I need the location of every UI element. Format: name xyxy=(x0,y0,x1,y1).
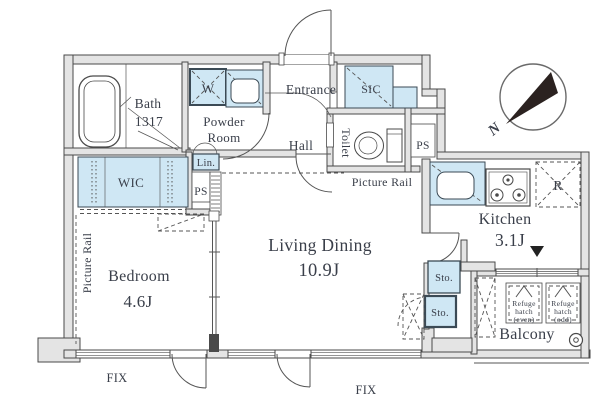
balcony-drain-icon xyxy=(570,334,583,347)
stove-icon xyxy=(486,169,530,206)
balcony-sliding-window-icon xyxy=(496,268,578,277)
fix-window-middle-icon xyxy=(228,350,275,358)
bathtub-icon xyxy=(79,64,180,150)
kitchen-label: Kitchen xyxy=(479,211,532,228)
kitchen-door-icon xyxy=(429,233,459,263)
storage-lower-label: Sto. xyxy=(431,308,449,319)
kitchen-sink-counter-icon xyxy=(430,162,485,205)
storage-door-icon xyxy=(398,297,427,326)
bath-label: Bath xyxy=(135,96,162,111)
direction-marker-icon xyxy=(530,246,544,257)
entrance-label: Entrance xyxy=(286,82,336,97)
fix-right-label: FIX xyxy=(355,383,376,397)
fix-left-label: FIX xyxy=(106,371,127,385)
compass-icon xyxy=(500,64,566,130)
entrance-door-icon xyxy=(279,10,334,65)
picture-rail-bedroom-label: Picture Rail xyxy=(80,232,94,293)
linen-label: Lin. xyxy=(197,158,215,169)
refuge-odd-line3: (odd) xyxy=(554,315,572,324)
floor-plan: Bath 1317 W Powder Room Entrance SIC Hal… xyxy=(0,0,600,402)
picture-rail-living-label: Picture Rail xyxy=(352,175,413,189)
toilet-label: Toilet xyxy=(339,128,353,158)
sic-label: SIC xyxy=(361,82,381,96)
wic-label: WIC xyxy=(118,175,144,190)
balcony-door-right-icon xyxy=(275,350,311,387)
washer-label: W xyxy=(202,81,215,96)
powder-room-label-2: Room xyxy=(208,130,241,145)
refrigerator-label: R xyxy=(553,178,562,193)
powder-sink-counter-icon xyxy=(226,70,263,107)
living-dining-size: 10.9J xyxy=(298,261,339,281)
fix-window-left-icon xyxy=(76,350,170,358)
fix-window-right-icon xyxy=(311,350,421,358)
toilet-icon xyxy=(355,129,403,162)
hall-label: Hall xyxy=(289,138,313,153)
floor-plan-drawing: Bath 1317 W Powder Room Entrance SIC Hal… xyxy=(0,0,600,402)
ps-right-label: PS xyxy=(416,140,429,152)
powder-room-label-1: Powder xyxy=(203,114,245,129)
living-dining-label: Living Dining xyxy=(268,235,372,255)
balcony-label: Balcony xyxy=(499,326,554,343)
compass-north-label: N xyxy=(485,119,505,140)
kitchen-size: 3.1J xyxy=(495,230,525,250)
shoe-closet-shelf-icon xyxy=(345,66,417,108)
balcony-door-left-icon xyxy=(170,350,207,388)
refuge-even-line3: (even) xyxy=(514,315,535,324)
room-partition xyxy=(209,211,220,352)
bedroom-label: Bedroom xyxy=(108,268,170,285)
bedroom-size: 4.6J xyxy=(123,292,152,311)
storage-upper-label: Sto. xyxy=(435,273,453,284)
ps-left-label: PS xyxy=(194,186,207,198)
bath-dimension: 1317 xyxy=(135,114,163,129)
toilet-door-icon xyxy=(327,123,334,147)
